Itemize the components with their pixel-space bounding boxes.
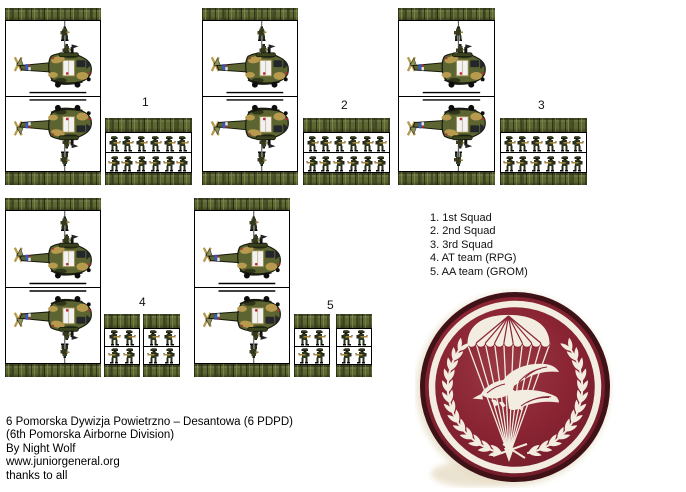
soldier-figure: [108, 136, 121, 152]
soldier-figure: [163, 136, 176, 152]
soldier-row: [105, 152, 192, 173]
unit-number-2: 2: [341, 98, 348, 112]
camo-band: [398, 8, 495, 20]
soldier-row: [294, 328, 330, 347]
legend-item-3: 3. 3rd Squad: [430, 239, 528, 252]
soldier-figure: [374, 136, 387, 152]
soldier-figure: [333, 136, 346, 152]
soldier-row: [105, 132, 192, 153]
soldier-figure: [176, 156, 189, 172]
soldier-row: [104, 328, 140, 347]
soldier-figure: [149, 156, 162, 172]
camo-band: [5, 172, 101, 185]
camo-band: [194, 198, 290, 210]
soldier-figure: [571, 156, 584, 172]
soldier-row: [303, 132, 390, 153]
soldier-figure: [135, 156, 148, 172]
soldier-figure: [123, 330, 136, 346]
soldier-row: [500, 132, 587, 153]
soldier-figure: [147, 330, 160, 346]
soldier-figure: [571, 136, 584, 152]
soldier-figure: [361, 156, 374, 172]
helicopter-art-front: [202, 20, 298, 97]
squad-block-3: [500, 118, 587, 185]
soldier-figure: [374, 156, 387, 172]
camo-band: [105, 118, 192, 132]
camo-band: [105, 173, 192, 185]
soldier-figure: [558, 156, 571, 172]
soldier-figure: [558, 136, 571, 152]
camo-band: [104, 365, 140, 377]
soldier-figure: [108, 156, 121, 172]
helicopter-stand-4: [5, 198, 101, 377]
helicopter-art-back: [5, 287, 101, 365]
at-team-block-a: [104, 314, 140, 377]
helicopter-art-back: [5, 96, 101, 173]
soldier-figure: [135, 136, 148, 152]
soldier-figure: [355, 348, 368, 364]
paper-miniatures-sheet: 1 2 3 4 5: [0, 0, 686, 492]
camo-band: [500, 118, 587, 132]
soldier-row: [336, 346, 372, 365]
camo-band: [194, 364, 290, 377]
soldier-figure: [544, 156, 557, 172]
helicopter-art-back: [398, 96, 495, 173]
helicopter-stand-2: [202, 8, 298, 185]
soldier-row: [294, 346, 330, 365]
soldier-figure: [121, 156, 134, 172]
camo-band: [336, 314, 372, 328]
soldier-figure: [347, 136, 360, 152]
unit-number-3: 3: [538, 98, 545, 112]
soldier-figure: [503, 136, 516, 152]
legend-item-5: 5. AA team (GROM): [430, 266, 528, 279]
soldier-figure: [516, 156, 529, 172]
soldier-figure: [108, 330, 121, 346]
soldier-figure: [306, 136, 319, 152]
camo-band: [336, 365, 372, 377]
soldier-figure: [313, 348, 326, 364]
camo-band: [303, 173, 390, 185]
squad-block-2: [303, 118, 390, 185]
soldier-figure: [147, 348, 160, 364]
soldier-row: [143, 328, 180, 347]
sheet-title-polish: 6 Pomorska Dywizja Powietrzno – Desantow…: [6, 416, 293, 429]
helicopter-art-front: [398, 20, 495, 97]
soldier-figure: [306, 156, 319, 172]
sheet-title-english: (6th Pomorska Airborne Division): [6, 429, 293, 442]
camo-band: [294, 314, 330, 328]
helicopter-art-back: [194, 287, 290, 365]
soldier-row: [500, 152, 587, 173]
soldier-figure: [361, 136, 374, 152]
soldier-figure: [503, 156, 516, 172]
soldier-figure: [340, 330, 353, 346]
aa-team-block-a: [294, 314, 330, 377]
soldier-figure: [313, 330, 326, 346]
squad-block-1: [105, 118, 192, 185]
soldier-figure: [530, 156, 543, 172]
soldier-figure: [355, 330, 368, 346]
soldier-figure: [333, 156, 346, 172]
soldier-row: [336, 328, 372, 347]
soldier-figure: [108, 348, 121, 364]
camo-band: [5, 364, 101, 377]
at-team-block-b: [143, 314, 180, 377]
soldier-row: [303, 152, 390, 173]
camo-band: [294, 365, 330, 377]
soldier-figure: [530, 136, 543, 152]
camo-band: [143, 365, 180, 377]
camo-band: [303, 118, 390, 132]
soldier-figure: [176, 136, 189, 152]
camo-band: [398, 172, 495, 185]
helicopter-stand-1: [5, 8, 101, 185]
helicopter-art-front: [5, 210, 101, 288]
camo-band: [143, 314, 180, 328]
author-line: By Night Wolf: [6, 443, 293, 456]
helicopter-art-front: [194, 210, 290, 288]
legend-item-2: 2. 2nd Squad: [430, 225, 528, 238]
soldier-figure: [163, 156, 176, 172]
soldier-figure: [340, 348, 353, 364]
thanks-line: thanks to all: [6, 470, 293, 483]
soldier-figure: [319, 136, 332, 152]
soldier-figure: [298, 330, 311, 346]
soldier-figure: [149, 136, 162, 152]
unit-legend: 1. 1st Squad 2. 2nd Squad 3. 3rd Squad 4…: [430, 212, 528, 279]
helicopter-art-front: [5, 20, 101, 97]
unit-number-4: 4: [139, 295, 146, 309]
soldier-figure: [121, 136, 134, 152]
camo-band: [202, 8, 298, 20]
camo-band: [202, 172, 298, 185]
helicopter-art-back: [202, 96, 298, 173]
camo-band: [5, 198, 101, 210]
unit-number-5: 5: [327, 298, 334, 312]
soldier-figure: [163, 348, 176, 364]
camo-band: [104, 314, 140, 328]
camo-band: [5, 8, 101, 20]
helicopter-stand-3: [398, 8, 495, 185]
soldier-figure: [163, 330, 176, 346]
legend-item-4: 4. AT team (RPG): [430, 252, 528, 265]
soldier-figure: [123, 348, 136, 364]
helicopter-stand-5: [194, 198, 290, 377]
soldier-row: [104, 346, 140, 365]
website-line: www.juniorgeneral.org: [6, 456, 293, 469]
soldier-figure: [319, 156, 332, 172]
soldier-row: [143, 346, 180, 365]
aa-team-block-b: [336, 314, 372, 377]
camo-band: [500, 173, 587, 185]
credits-block: 6 Pomorska Dywizja Powietrzno – Desantow…: [6, 416, 293, 483]
unit-number-1: 1: [142, 95, 149, 109]
soldier-figure: [516, 136, 529, 152]
legend-item-1: 1. 1st Squad: [430, 212, 528, 225]
soldier-figure: [347, 156, 360, 172]
airborne-division-insignia: [415, 286, 615, 488]
soldier-figure: [544, 136, 557, 152]
soldier-figure: [298, 348, 311, 364]
